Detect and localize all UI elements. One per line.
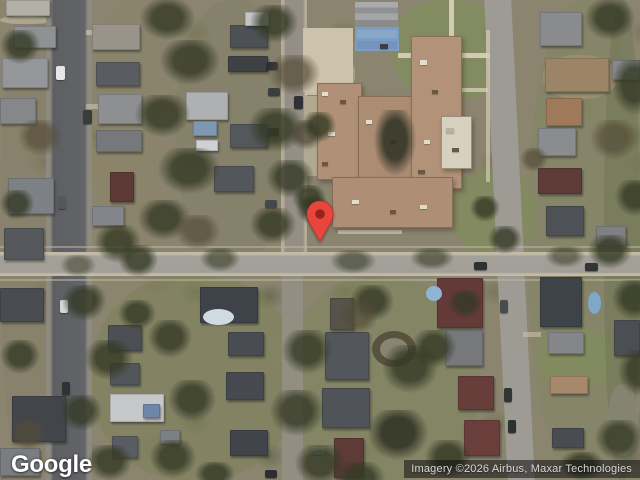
tree: [338, 300, 378, 334]
house: [540, 12, 582, 46]
tree: [488, 226, 522, 254]
roof-unit: [322, 92, 328, 96]
paved-lot: [357, 41, 397, 49]
car: [508, 420, 516, 433]
tree: [60, 255, 96, 277]
sidewalk: [486, 30, 490, 182]
tree: [615, 180, 640, 216]
imagery-attribution: Imagery ©2026 Airbus, Maxar Technologies: [404, 460, 640, 478]
tree: [168, 380, 216, 422]
roof-unit: [340, 100, 346, 104]
tree: [335, 462, 385, 480]
tree: [470, 196, 500, 222]
roof-unit: [420, 205, 427, 209]
car: [58, 196, 66, 209]
tree: [10, 420, 46, 450]
roof-unit: [452, 148, 459, 152]
tree: [140, 0, 195, 40]
sidewalk: [338, 230, 402, 234]
roof-unit: [352, 200, 359, 204]
tree: [0, 340, 40, 374]
house: [226, 372, 264, 400]
car: [56, 66, 65, 80]
tree: [618, 350, 640, 396]
house: [546, 98, 582, 126]
tree: [250, 5, 298, 43]
tree: [160, 40, 220, 85]
tree: [60, 395, 102, 431]
house: [458, 376, 494, 410]
tree: [200, 248, 240, 272]
house: [546, 206, 584, 236]
tree: [85, 340, 133, 380]
tree: [585, 0, 635, 40]
tree: [590, 120, 638, 160]
tree: [250, 208, 296, 244]
roof-unit: [432, 90, 438, 94]
building-complex: [441, 116, 472, 169]
house: [540, 277, 582, 327]
house: [96, 62, 140, 86]
tree: [282, 330, 332, 374]
tree: [150, 440, 196, 478]
tree: [374, 110, 416, 176]
tree: [368, 410, 428, 460]
car: [83, 110, 92, 124]
house: [230, 430, 268, 456]
house: [186, 92, 228, 120]
tree: [158, 148, 220, 194]
car: [265, 470, 277, 478]
tree: [135, 95, 190, 137]
car: [500, 300, 508, 313]
pin-body: [307, 201, 333, 242]
house: [4, 228, 44, 260]
house: [214, 166, 254, 192]
house: [548, 332, 584, 354]
house: [92, 24, 140, 50]
roof-unit: [420, 60, 427, 65]
tree: [118, 300, 156, 330]
tree: [88, 445, 132, 480]
tree: [448, 290, 482, 318]
paved-lot: [355, 2, 398, 27]
car: [62, 382, 70, 395]
car: [265, 200, 277, 208]
roof-unit: [424, 140, 430, 144]
house: [6, 0, 50, 16]
house: [228, 332, 264, 356]
tree: [412, 330, 456, 368]
car: [504, 388, 512, 402]
roof-unit: [380, 44, 388, 49]
tree: [18, 120, 62, 156]
car: [474, 262, 487, 270]
tree: [588, 235, 632, 269]
map-viewport[interactable]: Google Imagery ©2026 Airbus, Maxar Techn…: [0, 0, 640, 480]
roof-unit: [418, 170, 425, 174]
tree: [612, 280, 640, 320]
roof-unit: [366, 120, 372, 124]
roof-unit: [446, 128, 454, 133]
water: [426, 286, 442, 301]
house: [143, 404, 160, 418]
water: [203, 309, 234, 325]
roof-unit: [390, 210, 396, 214]
tree: [118, 245, 158, 277]
house: [322, 388, 370, 428]
tree: [0, 30, 40, 64]
sidewalk: [523, 332, 541, 337]
house: [550, 376, 588, 394]
red-map-pin-icon[interactable]: [306, 200, 334, 243]
tree: [175, 215, 220, 250]
tree: [330, 250, 376, 274]
pin-inner-dot: [315, 209, 325, 219]
tree: [270, 390, 324, 436]
house: [552, 428, 584, 448]
tree: [62, 285, 106, 321]
tree: [612, 60, 640, 115]
house: [92, 206, 124, 226]
house: [0, 288, 44, 322]
house: [545, 58, 609, 92]
tree: [520, 148, 548, 172]
roof-unit: [322, 162, 328, 166]
house: [193, 121, 217, 136]
paved-lot: [357, 30, 397, 38]
tree: [545, 246, 585, 268]
tree: [410, 248, 454, 270]
google-logo[interactable]: Google: [11, 453, 92, 477]
building-complex: [332, 177, 453, 228]
tree: [195, 462, 235, 480]
water: [588, 292, 601, 314]
tree: [0, 190, 34, 220]
tree: [268, 55, 320, 95]
house: [228, 56, 268, 72]
house: [110, 172, 134, 202]
tree: [302, 112, 336, 142]
